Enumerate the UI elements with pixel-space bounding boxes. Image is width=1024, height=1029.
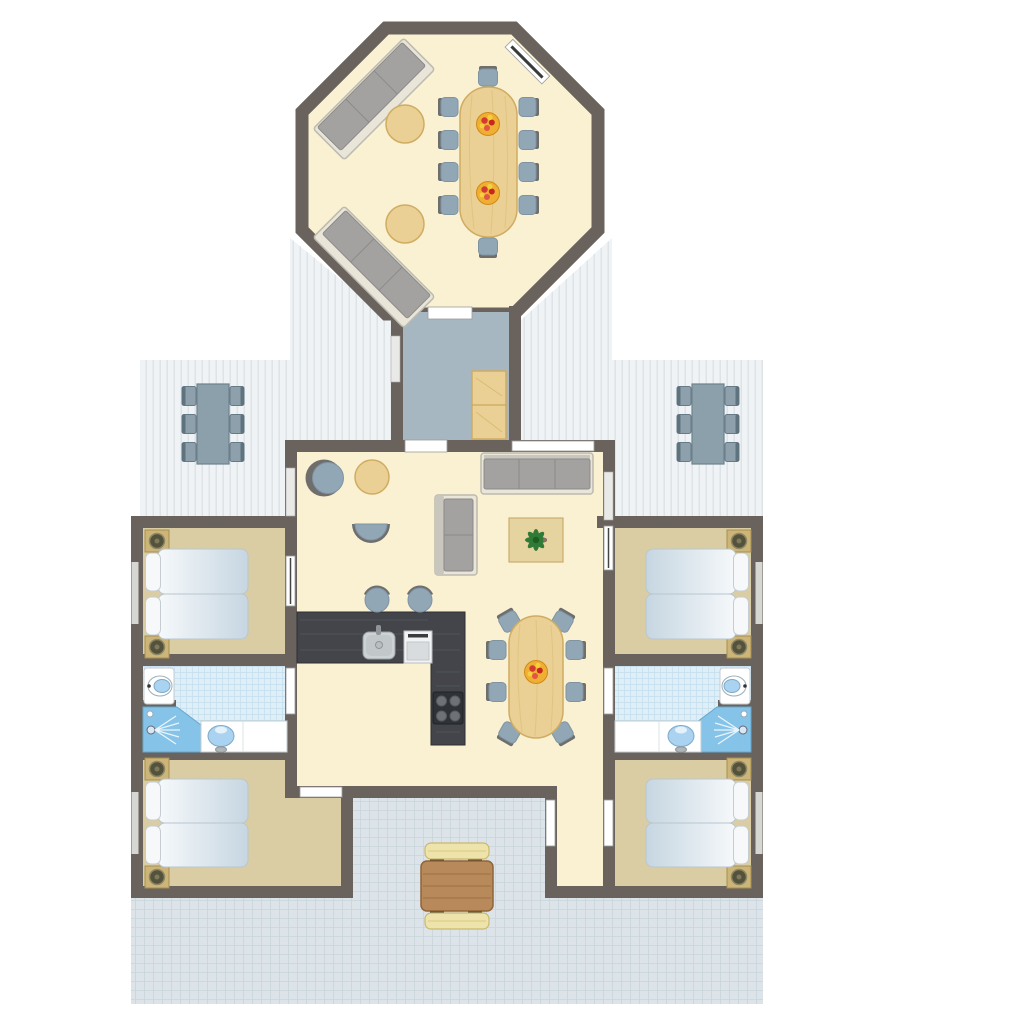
bed-mattress xyxy=(158,779,248,823)
vanity-left xyxy=(201,721,287,752)
picnic-set xyxy=(421,843,493,929)
bed-mattress xyxy=(646,549,736,594)
bedroom-right-top-window xyxy=(756,562,763,624)
bed-mattress xyxy=(158,549,248,594)
bed-mattress xyxy=(646,779,736,823)
hallway-furniture xyxy=(472,371,506,439)
bedroom-right-top-door xyxy=(604,526,613,570)
fruit-bowl-2 xyxy=(477,182,500,205)
bedroom-right-bottom-window xyxy=(756,792,763,854)
right-wing-wall-top xyxy=(597,516,763,528)
bed-mattress xyxy=(646,823,736,867)
pillow xyxy=(734,782,749,820)
living-side-table xyxy=(355,460,389,494)
deck-left-table xyxy=(197,384,229,464)
deck-right-dining-set xyxy=(677,384,739,464)
entrance-passage-floor xyxy=(555,780,603,892)
bathroom-left-door xyxy=(286,668,295,714)
bar-stool-2 xyxy=(408,588,432,612)
pillow xyxy=(146,597,161,635)
hallway-window xyxy=(391,336,400,382)
living-window-left xyxy=(286,468,295,516)
hallway-living-door xyxy=(405,440,447,452)
coffee-table xyxy=(509,518,563,562)
faucet xyxy=(376,625,381,635)
bedside-table xyxy=(727,866,751,888)
pavilion-dining-table xyxy=(460,87,517,237)
bedroom-left-top-door xyxy=(286,556,295,606)
pillow xyxy=(146,553,161,591)
floorplan-page xyxy=(0,0,1024,1024)
living-window-right xyxy=(604,472,613,520)
toilet-left xyxy=(144,668,174,704)
floorplan-canvas xyxy=(0,0,1024,1024)
bedside-table xyxy=(145,758,169,780)
pillow xyxy=(734,826,749,864)
kitchen-cooktop xyxy=(433,692,463,724)
bed-mattress xyxy=(158,823,248,867)
two-seat-sofa xyxy=(435,495,477,575)
bedroom-right-bottom-door xyxy=(604,800,613,846)
bedroom-left-top-window xyxy=(132,562,139,624)
left-wing-wall-top xyxy=(131,516,297,528)
pavilion-side-table-2 xyxy=(386,205,424,243)
pavilion-side-table-1 xyxy=(386,105,424,143)
bedroom-left-bottom-door xyxy=(300,787,342,797)
pillow xyxy=(146,782,161,820)
hallway-wall-right xyxy=(509,306,521,446)
toilet-right xyxy=(720,668,750,704)
pillow xyxy=(734,597,749,635)
bedroom-left-bottom-wall-right xyxy=(341,786,353,898)
entrance-terrace-door xyxy=(546,800,555,846)
bedside-table xyxy=(727,758,751,780)
bedroom-left-bottom-window xyxy=(132,792,139,854)
pillow xyxy=(734,553,749,591)
pavilion-door xyxy=(428,307,472,319)
vanity-right xyxy=(615,721,701,752)
deck-left-dining-set xyxy=(182,384,244,464)
pillow xyxy=(146,826,161,864)
deck-right-table xyxy=(692,384,724,464)
kitchen-oven xyxy=(404,631,432,663)
bed-mattress xyxy=(646,594,736,639)
bathroom-right-door xyxy=(604,668,613,714)
bed-mattress xyxy=(158,594,248,639)
three-seat-sofa xyxy=(481,453,593,494)
fruit-bowl-3 xyxy=(525,661,548,684)
living-window-top xyxy=(512,441,594,451)
fruit-bowl-1 xyxy=(477,113,500,136)
bedside-table xyxy=(145,866,169,888)
bar-stool-1 xyxy=(365,588,389,612)
potted-plant xyxy=(525,529,547,551)
